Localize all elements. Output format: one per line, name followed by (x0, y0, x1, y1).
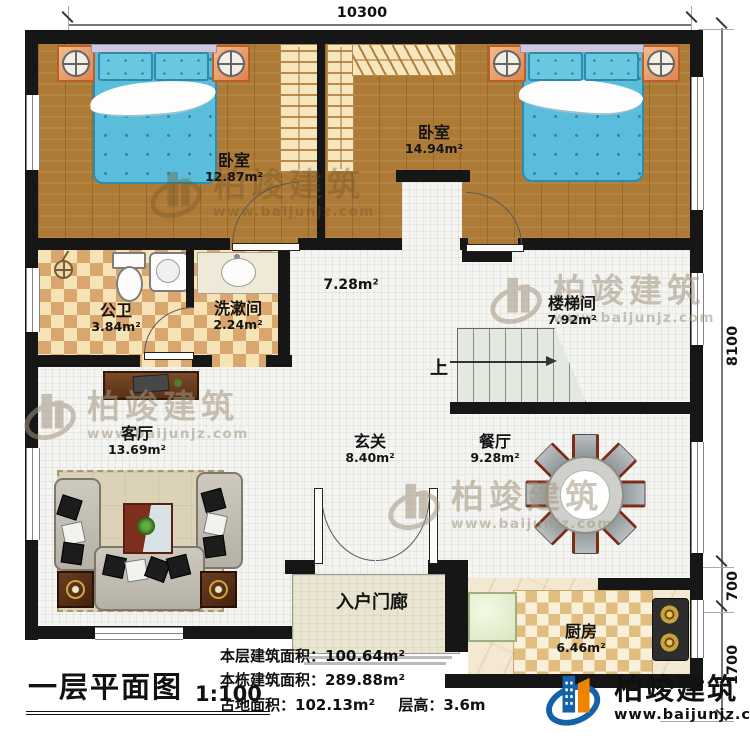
watermark-url: www.baijunjz.com (213, 204, 375, 220)
nightstand-lamp (642, 45, 680, 82)
room-area: 2.24m² (213, 318, 262, 332)
watermark-brand: 柏竣建筑 (87, 390, 249, 423)
side-table (57, 571, 94, 608)
room-name: 卧室 (405, 124, 463, 142)
nightstand-lamp (212, 45, 250, 82)
watermark-url: www.baijunjz.com (451, 516, 613, 532)
shower-head-icon (54, 260, 73, 279)
faucet (234, 254, 240, 259)
company-logo: 柏竣建筑 www.baijunjz.com (546, 670, 750, 728)
pillow (154, 52, 209, 81)
room-area: 13.69m² (108, 443, 166, 457)
room-area: 7.28m² (323, 278, 378, 294)
cushion (203, 535, 227, 559)
lamp-icon (493, 50, 521, 77)
door-leaf (466, 244, 524, 252)
room-area: 9.28m² (470, 451, 519, 465)
room-label-living: 客厅 13.69m² (108, 425, 166, 457)
window (691, 600, 704, 658)
room-name: 玄关 (345, 433, 394, 451)
wall (38, 238, 230, 250)
entry-door-leaf (314, 488, 323, 564)
stat-label: 占地面积： (220, 696, 295, 714)
wall (25, 30, 703, 44)
room-name: 洗漱间 (213, 300, 262, 318)
dimension-label-top: 10300 (337, 5, 387, 21)
window (95, 627, 183, 640)
cushion (203, 512, 228, 537)
wardrobe (280, 44, 318, 172)
room-area: 7.92m² (547, 313, 596, 327)
room-label-stairwell: 楼梯间 7.92m² (547, 295, 596, 327)
room-area: 14.94m² (405, 142, 463, 156)
wardrobe (327, 44, 354, 172)
wall (450, 402, 690, 414)
stat-value: 102.13m² (295, 696, 375, 714)
wall (25, 355, 140, 367)
stat-row: 占地面积：102.13m² 层高：3.6m (220, 693, 486, 717)
stat-row: 本栋建筑面积：289.88m² (220, 668, 486, 692)
window (26, 448, 40, 540)
stairs-direction-line (450, 361, 546, 363)
washroom-sink (221, 258, 256, 287)
cushion (102, 554, 127, 579)
stove-burner-icon (659, 632, 680, 653)
wall (278, 250, 290, 367)
room-area: 3.84m² (91, 320, 140, 334)
room-label-bathroom: 公卫 3.84m² (91, 302, 140, 334)
room-name: 楼梯间 (547, 295, 596, 313)
room-area: 8.40m² (345, 451, 394, 465)
room-label-kitchen: 厨房 6.46m² (556, 623, 605, 655)
door-leaf (144, 352, 194, 360)
wall (186, 250, 194, 308)
side-table (200, 571, 237, 608)
stat-label: 层高： (398, 696, 443, 714)
lamp-icon (217, 50, 245, 77)
stat-label: 本层建筑面积： (220, 647, 325, 665)
washbasin-bowl (156, 259, 180, 283)
stat-value: 3.6m (443, 696, 485, 714)
pillow (98, 52, 153, 81)
room-name: 厨房 (556, 623, 605, 641)
watermark-brand: 柏竣建筑 (451, 480, 613, 513)
company-website: www.baijunjz.com (614, 707, 750, 723)
dimension-line-right (721, 28, 723, 722)
pillow (584, 52, 639, 81)
brand-logo-icon (24, 388, 82, 444)
brand-logo-icon (388, 478, 446, 534)
wall (522, 238, 690, 250)
sideboard-plant (174, 379, 182, 387)
room-label-washroom: 洗漱间 2.24m² (213, 300, 262, 332)
dimension-label-right: 8100 (725, 326, 741, 366)
extension-line (698, 567, 734, 568)
stairs-up-label: 上 (430, 354, 448, 380)
window (26, 268, 40, 332)
pillow (528, 52, 583, 81)
room-name: 餐厅 (470, 433, 519, 451)
wall (266, 355, 292, 367)
wall (285, 560, 315, 574)
bedroom-right-doorway-floor (402, 182, 462, 250)
dimension-line-top (68, 24, 692, 26)
room-label-foyer: 玄关 8.40m² (345, 433, 394, 465)
floor-plan: 上 (0, 0, 750, 745)
door-leaf (232, 243, 300, 251)
room-name: 入户门廊 (336, 593, 408, 613)
stat-value: 100.64m² (325, 647, 405, 665)
window (691, 442, 704, 553)
stairs-arrow-icon (546, 356, 557, 366)
stat-row: 本层建筑面积：100.64m² (220, 644, 486, 668)
toilet-bowl (116, 266, 143, 302)
stat-label: 本栋建筑面积： (220, 671, 325, 689)
brand-logo-icon (150, 166, 208, 222)
wardrobe (352, 44, 456, 76)
room-area: 12.87m² (205, 170, 263, 184)
company-logo-icon (546, 670, 608, 728)
porch-floor (292, 574, 460, 654)
fridge (468, 592, 517, 642)
watermark: 柏竣建筑 www.baijunjz.com (490, 272, 715, 328)
room-label-bedroom-left: 卧室 12.87m² (205, 152, 263, 184)
extension-line (698, 29, 734, 30)
dimension-label-right: 700 (725, 571, 741, 601)
wall (192, 355, 212, 367)
window (26, 95, 40, 170)
watermark-text: 柏竣建筑 www.baijunjz.com (451, 480, 613, 532)
stove-burner-icon (659, 604, 680, 625)
window (691, 77, 704, 210)
lamp-icon (62, 50, 90, 77)
room-label-bedroom-right: 卧室 14.94m² (405, 124, 463, 156)
company-logo-text: 柏竣建筑 www.baijunjz.com (614, 675, 750, 723)
plant (137, 517, 155, 535)
lamp-icon (647, 50, 675, 77)
wall (396, 170, 470, 182)
brand-logo-icon (490, 272, 548, 328)
stat-value: 289.88m² (325, 671, 405, 689)
room-label-porch: 入户门廊 (336, 593, 408, 613)
wall (598, 578, 690, 590)
room-name: 卧室 (205, 152, 263, 170)
nightstand-lamp (57, 45, 95, 82)
room-name: 公卫 (91, 302, 140, 320)
room-area: 6.46m² (556, 641, 605, 655)
room-name: 客厅 (108, 425, 166, 443)
wall (298, 238, 402, 250)
cushion (61, 542, 85, 566)
area-statistics: 本层建筑面积：100.64m² 本栋建筑面积：289.88m² 占地面积：102… (220, 644, 486, 717)
room-label-hall: 7.28m² (323, 278, 378, 294)
watermark: 柏竣建筑 www.baijunjz.com (388, 478, 613, 534)
title-text: 一层平面图 (28, 664, 183, 706)
room-label-dining: 餐厅 9.28m² (470, 433, 519, 465)
company-name: 柏竣建筑 (614, 675, 750, 704)
